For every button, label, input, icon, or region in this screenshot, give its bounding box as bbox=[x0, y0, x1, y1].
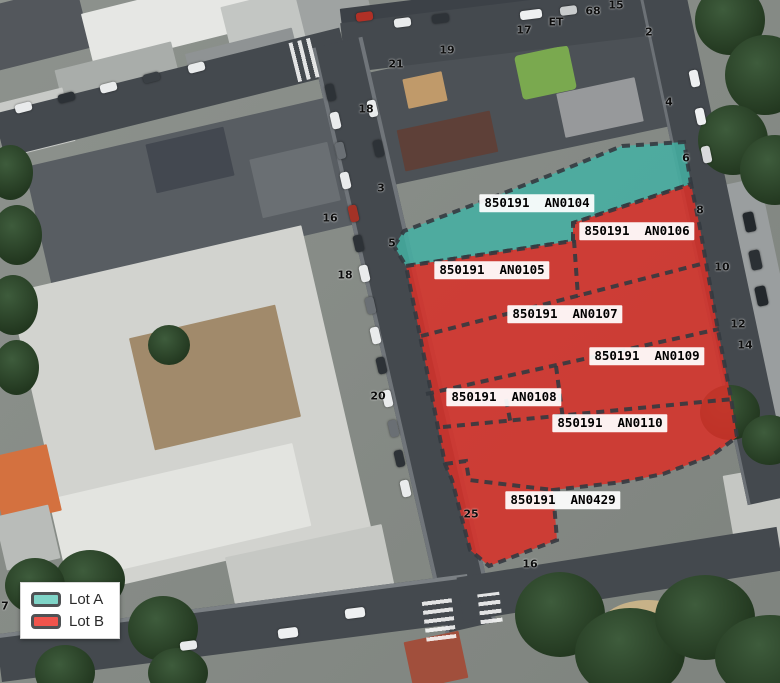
street-number: 17 bbox=[516, 25, 531, 36]
legend-label: Lot A bbox=[69, 592, 103, 607]
parcel-label: 850191 AN0105 bbox=[434, 261, 549, 279]
street-number: 3 bbox=[377, 183, 385, 194]
parcel-label: 850191 AN0107 bbox=[507, 305, 622, 323]
crosswalk bbox=[477, 592, 502, 624]
street-number: 18 bbox=[337, 270, 352, 281]
street-number: 12 bbox=[730, 319, 745, 330]
parcel-label: 850191 AN0110 bbox=[552, 414, 667, 432]
street-number: 7 bbox=[1, 601, 9, 612]
street-number: 68 bbox=[585, 6, 600, 17]
car bbox=[399, 479, 412, 498]
street-number: 15 bbox=[608, 0, 623, 11]
aerial-photo-base bbox=[0, 0, 780, 683]
lot-a-swatch bbox=[31, 592, 61, 607]
street-number: 20 bbox=[370, 391, 385, 402]
map-legend: Lot A Lot B bbox=[20, 582, 120, 639]
street-number: 16 bbox=[522, 559, 537, 570]
street-number: 16 bbox=[322, 213, 337, 224]
legend-item-lot-a: Lot A bbox=[31, 592, 109, 607]
street-number: 18 bbox=[358, 104, 373, 115]
street-number: 19 bbox=[439, 45, 454, 56]
crosswalk bbox=[422, 596, 457, 641]
parcel-label: 850191 AN0429 bbox=[505, 491, 620, 509]
street-number: 14 bbox=[737, 340, 752, 351]
lot-b-swatch bbox=[31, 614, 61, 629]
street-number: 5 bbox=[388, 238, 396, 249]
legend-item-lot-b: Lot B bbox=[31, 614, 109, 629]
street-number: 8 bbox=[696, 205, 704, 216]
street-number: 6 bbox=[682, 153, 690, 164]
street-number: 10 bbox=[714, 262, 729, 273]
street-number: 2 bbox=[645, 27, 653, 38]
parcel-label: 850191 AN0108 bbox=[446, 388, 561, 406]
parcel-label: 850191 AN0104 bbox=[479, 194, 594, 212]
legend-label: Lot B bbox=[69, 614, 104, 629]
satellite-map: 850191 AN0104 850191 AN0106 850191 AN010… bbox=[0, 0, 780, 683]
street-number: 25 bbox=[463, 509, 478, 520]
tree bbox=[0, 145, 33, 200]
parcel-label: 850191 AN0109 bbox=[589, 347, 704, 365]
parcel-label: 850191 AN0106 bbox=[579, 222, 694, 240]
street-number: 4 bbox=[665, 97, 673, 108]
street-number: 21 bbox=[388, 59, 403, 70]
tree bbox=[148, 325, 190, 365]
building-block bbox=[0, 0, 91, 71]
street-number: ET bbox=[548, 17, 563, 28]
